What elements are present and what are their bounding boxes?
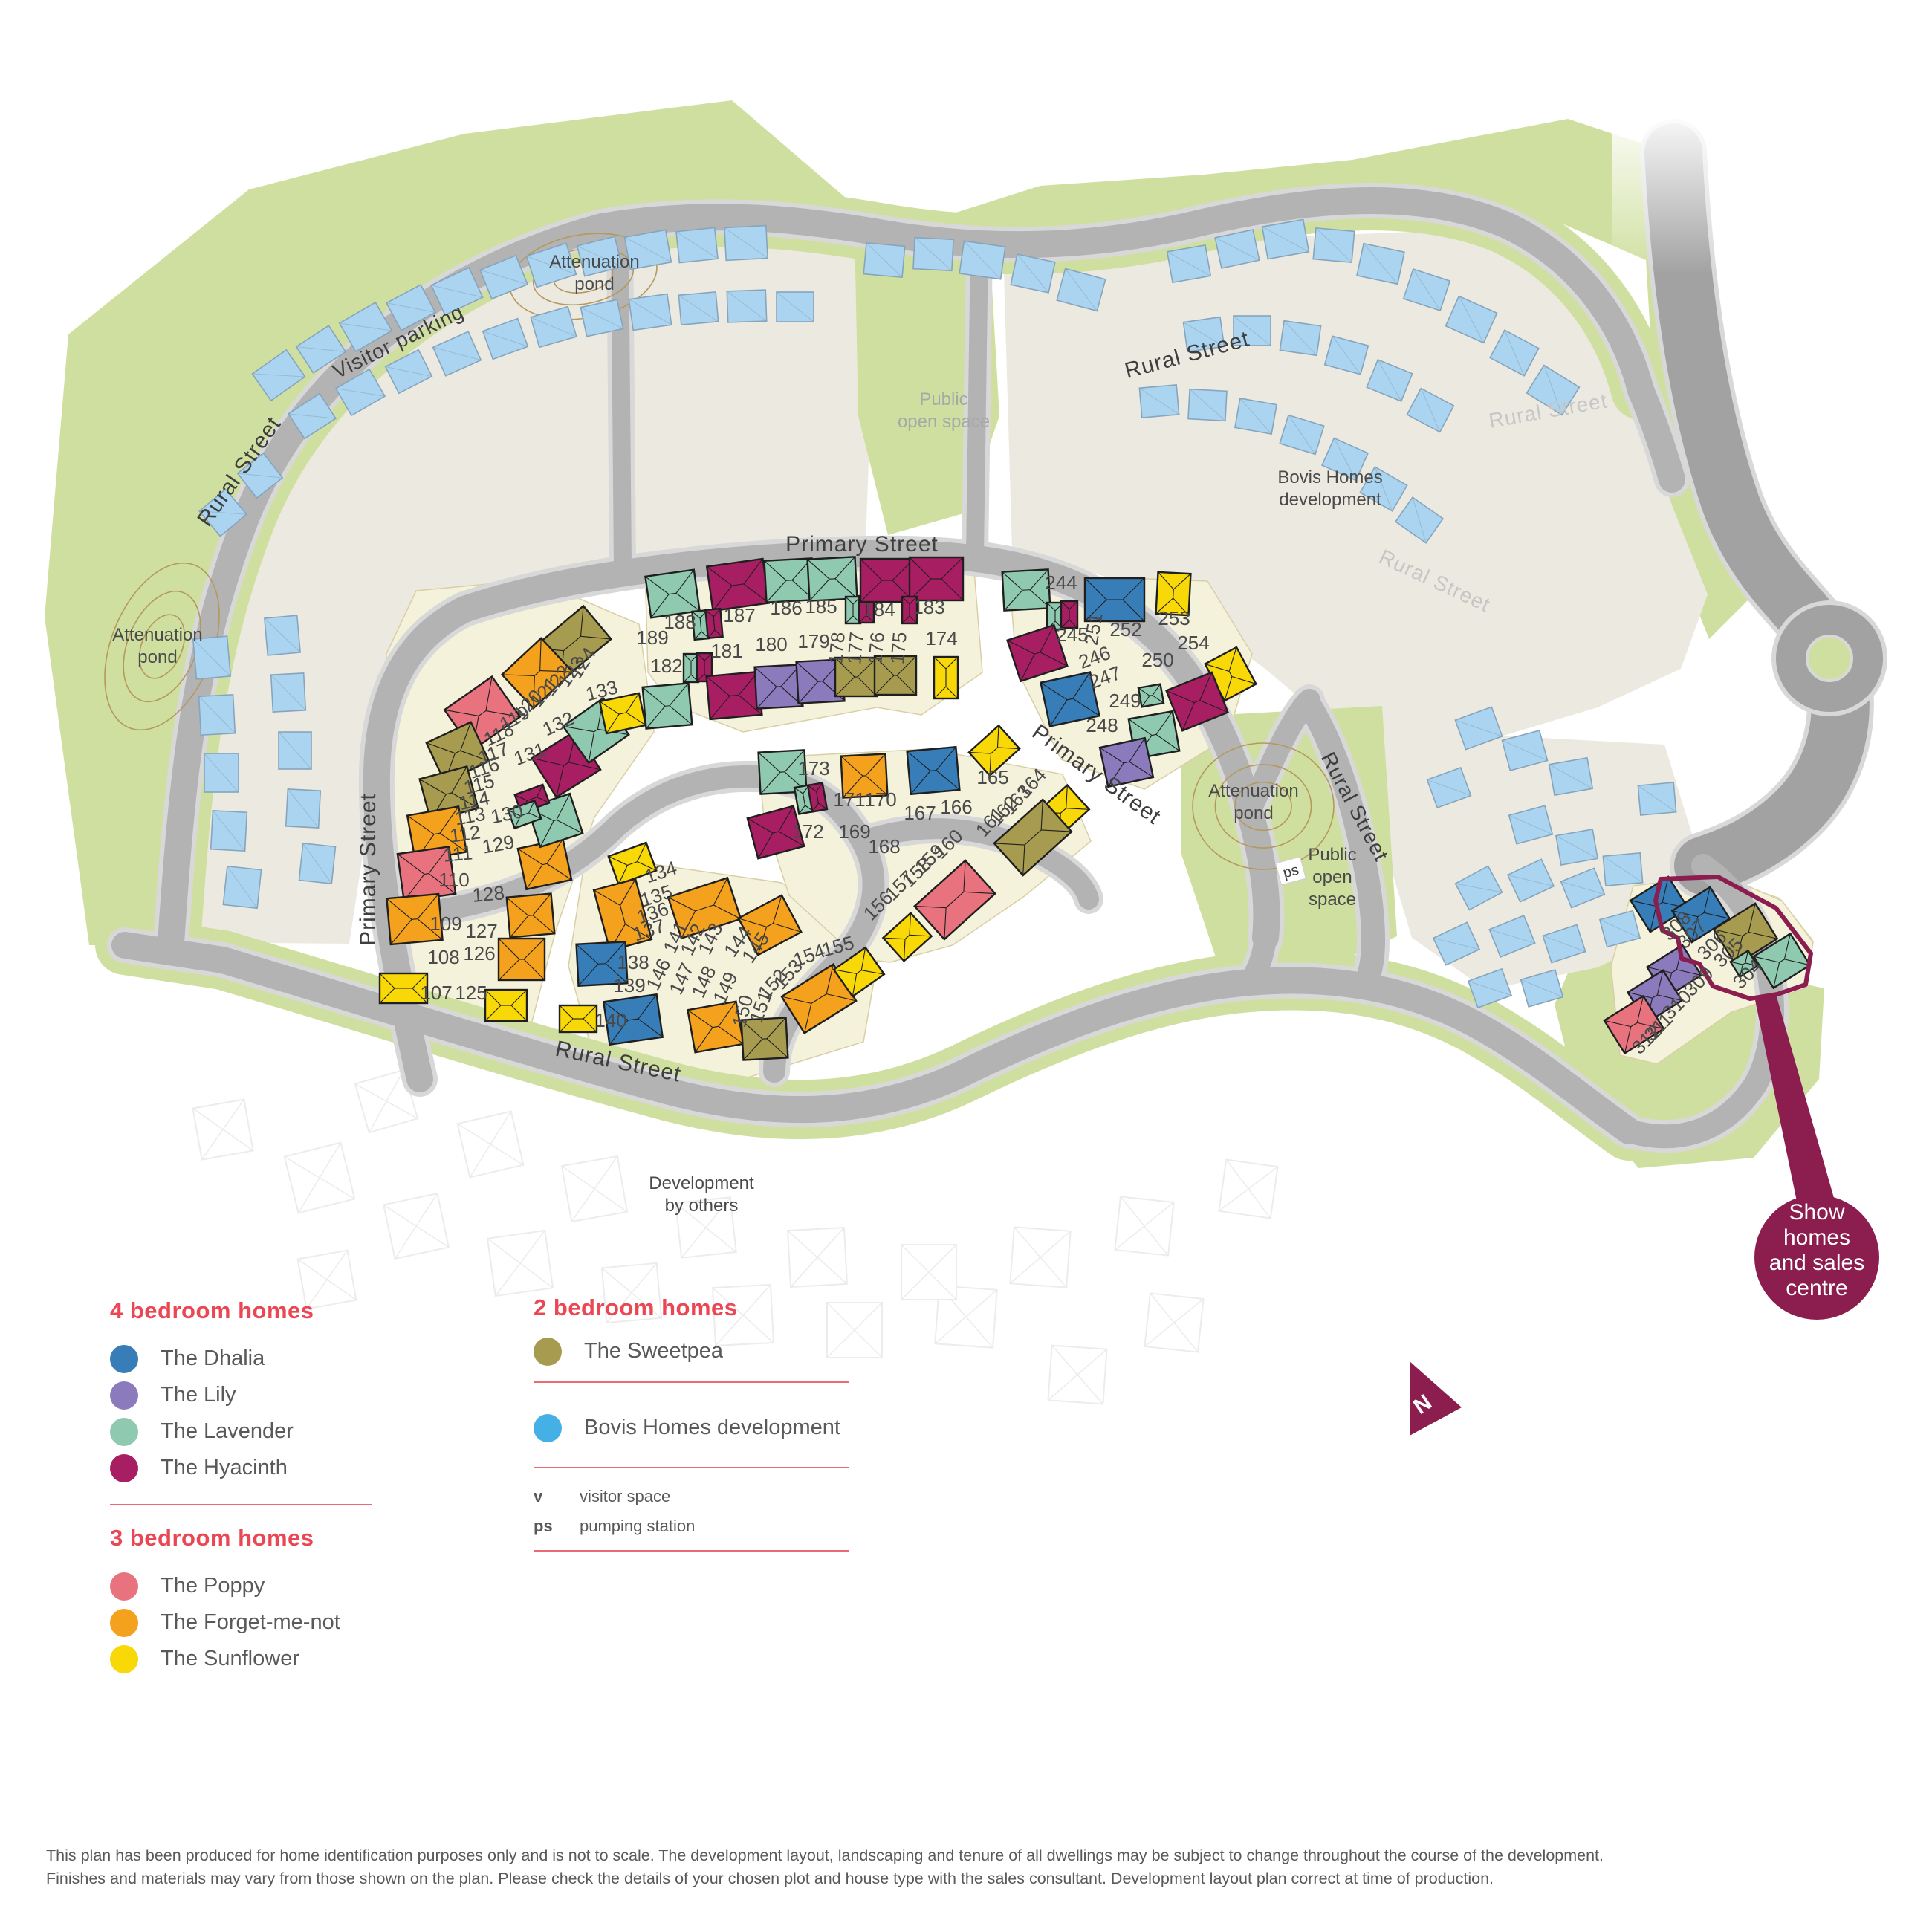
legend-swatch-icon (534, 1338, 562, 1366)
plot-number: 138 (617, 951, 649, 973)
plot-number: 165 (976, 766, 1008, 788)
house-sf (934, 657, 958, 698)
bovis-house (1603, 853, 1642, 886)
plot-number: 140 (594, 1009, 626, 1031)
plot-number: 128 (471, 881, 505, 907)
house-fm (499, 939, 545, 980)
plot-number: 254 (1177, 632, 1209, 654)
legend-item-label: The Lily (161, 1383, 236, 1407)
legend-item-label: The Hyacinth (161, 1456, 288, 1480)
legend-col-2: 2 bedroom homes The Sweetpea Bovis Homes… (534, 1294, 875, 1552)
bovis-house (1556, 829, 1598, 865)
bovis-house (913, 238, 953, 271)
plot-number: 249 (1109, 690, 1141, 712)
area-label: Public (1308, 845, 1356, 865)
area-label: development (1279, 490, 1381, 510)
street-label: Primary Street (785, 532, 939, 557)
plot-number: 108 (427, 946, 459, 968)
ghost-house (562, 1156, 627, 1222)
plot-number: 248 (1086, 714, 1118, 736)
legend-abbreviations: vvisitor spacepspumping station (534, 1482, 875, 1541)
legend-item-bovis: Bovis Homes development (534, 1410, 875, 1446)
legend-item: The Sweetpea (534, 1333, 875, 1369)
legend-divider (110, 1504, 372, 1505)
plot-number: 182 (650, 655, 682, 677)
house-hy (860, 559, 914, 602)
plot-number: 109 (429, 912, 461, 935)
ghost-house (383, 1193, 449, 1259)
area-label: open (1312, 867, 1352, 887)
plot-number: 185 (805, 595, 837, 617)
plot-number: 189 (636, 626, 668, 649)
house-lv (1002, 569, 1051, 610)
bovis-house (1549, 758, 1593, 795)
plot-number: 172 (791, 820, 823, 843)
area-label: Development (649, 1173, 754, 1193)
bovis-house (724, 226, 768, 261)
legend-swatch-icon (110, 1345, 138, 1373)
area-label: Attenuation (1208, 781, 1298, 801)
plot-number: 125 (455, 982, 487, 1004)
ghost-house (901, 1245, 956, 1300)
road (620, 230, 623, 566)
legend-heading-2bed: 2 bedroom homes (534, 1294, 875, 1321)
legend-item: The Lily (110, 1377, 452, 1413)
bovis-house (959, 241, 1005, 279)
plot-number: 168 (868, 835, 900, 858)
house-hy (707, 559, 769, 611)
abbreviation-key: ps (534, 1517, 580, 1536)
callout-text: and sales (1769, 1251, 1864, 1275)
area-label: Bovis Homes (1277, 467, 1382, 487)
legend-items-2bed: The Sweetpea (534, 1333, 875, 1369)
legend-heading-3bed: 3 bedroom homes (110, 1525, 452, 1552)
ghost-house (1010, 1227, 1070, 1287)
abbreviation-label: pumping station (580, 1517, 695, 1536)
plot-number: 166 (940, 796, 972, 818)
bovis-house (279, 732, 311, 769)
bovis-house (1139, 385, 1179, 418)
legend-abbreviation: pspumping station (534, 1511, 875, 1541)
roundabout-island (1809, 638, 1850, 679)
road (975, 245, 979, 554)
area-label: space (1309, 889, 1356, 910)
bovis-house (1167, 245, 1211, 282)
bovis-house (211, 811, 247, 851)
plot-number: 180 (755, 633, 787, 655)
legend-item: The Hyacinth (110, 1450, 452, 1486)
area-label: Attenuation (549, 252, 639, 272)
bovis-house (299, 843, 336, 884)
bovis-house (286, 789, 321, 828)
site-plan-page: psShowhomesand salescentreN 107108109110… (0, 0, 1932, 1932)
bovis-house (676, 227, 718, 262)
bovis-house (777, 292, 814, 322)
legend-item-label: The Dhalia (161, 1346, 265, 1371)
legend-item: The Dhalia (110, 1341, 452, 1377)
house-hy (705, 609, 722, 638)
ghost-house (192, 1099, 253, 1159)
legend-item-label: The Sweetpea (584, 1339, 723, 1364)
plot-number: 253 (1158, 607, 1190, 629)
house-sf (560, 1005, 597, 1032)
bovis-house (1638, 782, 1676, 815)
plot-number: 171 (833, 788, 865, 811)
area-label: Public (919, 389, 967, 409)
plot-number: 174 (925, 627, 957, 649)
plot-number: 188 (664, 611, 696, 633)
legend-divider (534, 1550, 849, 1552)
legend-swatch-icon (110, 1572, 138, 1601)
legend-item: The Lavender (110, 1413, 452, 1450)
plot-number: 107 (420, 982, 452, 1004)
bovis-house (1262, 219, 1309, 259)
plot-number: 175 (886, 631, 911, 665)
legend-swatch-icon (110, 1418, 138, 1446)
legend-item-label: The Lavender (161, 1419, 294, 1444)
legend-swatch-icon (110, 1609, 138, 1637)
legend-item: Bovis Homes development (534, 1410, 875, 1446)
bovis-house (271, 673, 306, 712)
legend-items-4bed: The DhaliaThe LilyThe LavenderThe Hyacin… (110, 1341, 452, 1486)
house-lv (1138, 684, 1164, 707)
ghost-house (788, 1228, 847, 1287)
house-lv (808, 557, 858, 600)
bovis-house (727, 290, 766, 322)
legend-abbreviation: vvisitor space (534, 1482, 875, 1511)
plot-number: 126 (463, 942, 495, 965)
plot-number: 184 (863, 598, 895, 620)
legend-item-label: Bovis Homes development (584, 1416, 840, 1440)
area-label: pond (574, 274, 614, 294)
plot-number: 250 (1141, 649, 1173, 671)
plot-number: 169 (838, 820, 870, 843)
bovis-house (863, 243, 904, 277)
ghost-house (1048, 1346, 1107, 1404)
legend-item-label: The Sunflower (161, 1647, 299, 1671)
area-label: Attenuation (112, 625, 202, 645)
ghost-house (1144, 1293, 1203, 1352)
bovis-house (629, 294, 671, 331)
abbreviation-label: visitor space (580, 1487, 670, 1506)
plot-number: 244 (1045, 571, 1077, 594)
bovis-house (199, 695, 236, 735)
callout-text: centre (1786, 1276, 1847, 1300)
plot-number: 127 (465, 920, 497, 942)
house-fm (518, 839, 571, 889)
plot-number: 186 (770, 597, 802, 619)
area-label: pond (1234, 803, 1273, 823)
plot-number: 181 (710, 640, 742, 662)
plot-number: 170 (864, 788, 896, 811)
plot-number: 110 (438, 869, 469, 891)
bovis-house (265, 615, 300, 655)
disclaimer-line-1: This plan has been produced for home ide… (46, 1844, 1889, 1867)
bovis-house (1313, 228, 1354, 262)
bovis-house (223, 866, 261, 909)
legend-item-label: The Forget-me-not (161, 1610, 340, 1635)
legend-swatch-icon (110, 1454, 138, 1482)
area-label: by others (665, 1196, 739, 1216)
road-fade (1612, 104, 1739, 275)
abbreviation-key: v (534, 1487, 580, 1506)
legend-item-label: The Poppy (161, 1574, 265, 1598)
legend-items-3bed: The PoppyThe Forget-me-notThe Sunflower (110, 1568, 452, 1677)
area-label: open space (898, 412, 990, 432)
bovis-house (204, 753, 239, 792)
legend-col-1: 4 bedroom homes The DhaliaThe LilyThe La… (110, 1297, 452, 1677)
bovis-house (1235, 398, 1277, 434)
plot-number: 179 (797, 630, 829, 652)
ghost-house (458, 1112, 524, 1178)
legend-swatch-icon (110, 1645, 138, 1673)
legend-item: The Forget-me-not (110, 1604, 452, 1641)
disclaimer: This plan has been produced for home ide… (46, 1844, 1889, 1890)
legend-item: The Poppy (110, 1568, 452, 1604)
legend-divider (534, 1467, 849, 1468)
plot-number: 252 (1109, 618, 1141, 641)
legend-heading-4bed: 4 bedroom homes (110, 1297, 452, 1324)
bovis-house (1280, 321, 1320, 356)
legend-swatch-icon (110, 1381, 138, 1410)
house-hy (707, 672, 762, 719)
area-label: pond (137, 647, 177, 667)
house-dh (907, 747, 960, 794)
house-hy (910, 557, 963, 600)
ghost-house (1115, 1196, 1173, 1255)
plot-number: 183 (912, 596, 944, 618)
house-sf (485, 990, 527, 1021)
house-lv (643, 683, 693, 728)
plot-number: 173 (797, 757, 829, 779)
street-label: Primary Street (356, 793, 380, 946)
ghost-house (1219, 1159, 1277, 1218)
house-li (755, 664, 803, 708)
ghost-house (285, 1143, 355, 1213)
callout-text: Show (1789, 1200, 1844, 1225)
ghost-house (487, 1231, 553, 1296)
callout-text: homes (1783, 1225, 1850, 1250)
legend-swatch-icon (534, 1414, 562, 1442)
legend-divider (534, 1381, 849, 1383)
plot-number: 139 (613, 974, 645, 996)
legend-item: The Sunflower (110, 1641, 452, 1677)
house-fm (507, 893, 554, 937)
bovis-house (1188, 389, 1227, 421)
bovis-house (678, 292, 718, 325)
disclaimer-line-2: Finishes and materials may vary from tho… (46, 1867, 1889, 1890)
plot-number: 167 (904, 802, 936, 824)
plot-number: 187 (723, 604, 755, 626)
